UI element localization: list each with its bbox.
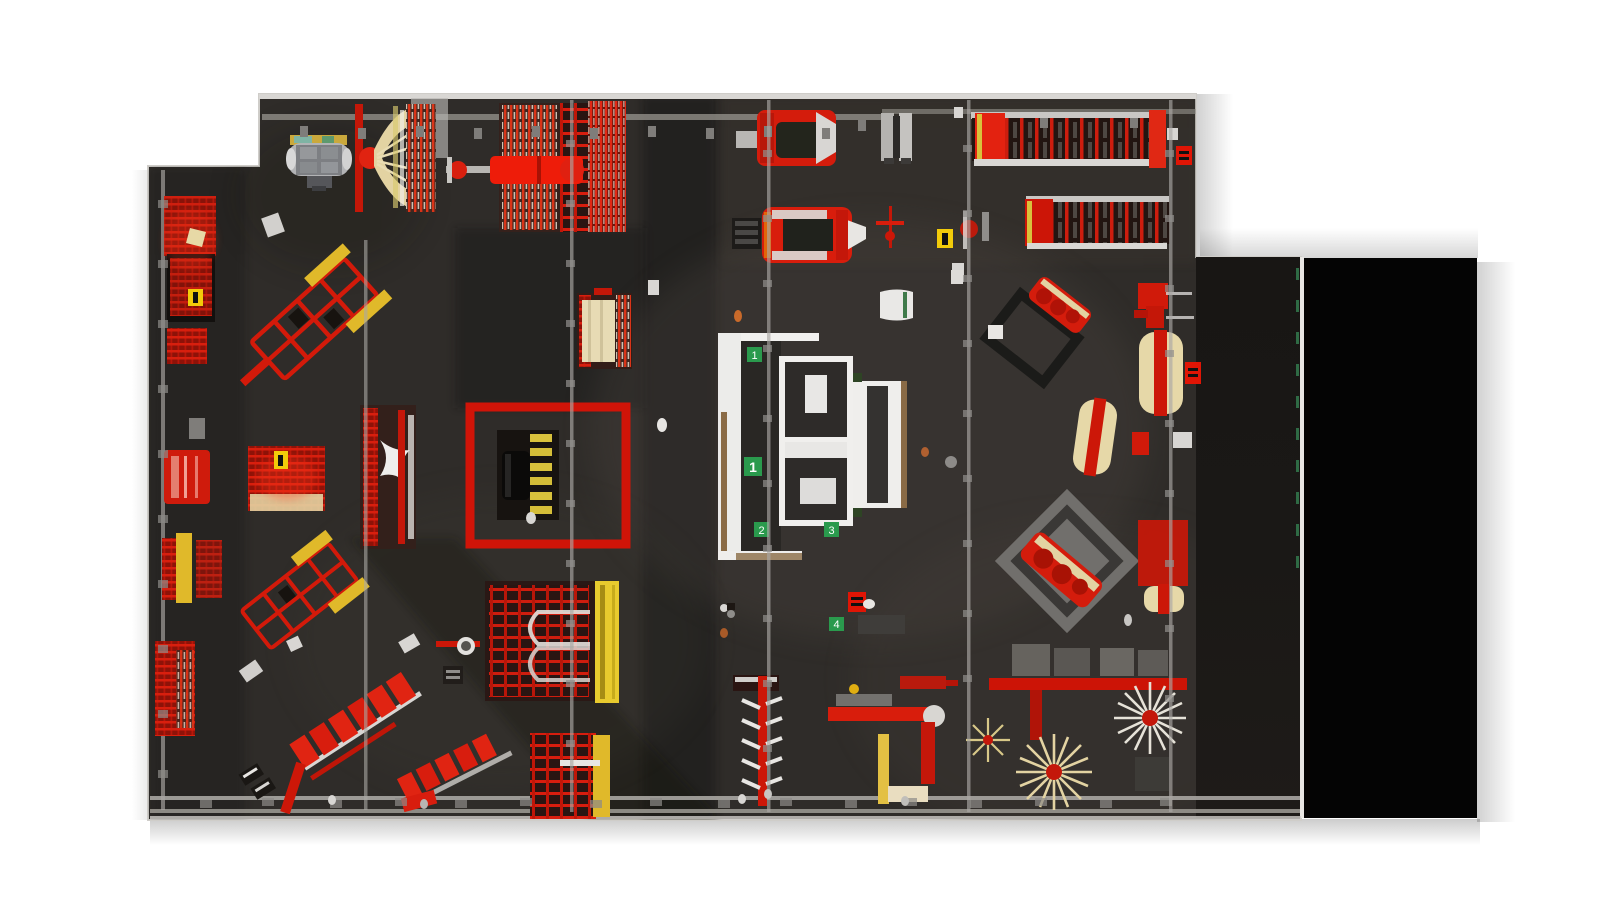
svg-text:4: 4 bbox=[833, 619, 839, 631]
svg-text:1: 1 bbox=[751, 350, 757, 362]
svg-text:1: 1 bbox=[749, 459, 757, 475]
svg-text:2: 2 bbox=[758, 525, 764, 537]
svg-text:3: 3 bbox=[828, 525, 834, 537]
